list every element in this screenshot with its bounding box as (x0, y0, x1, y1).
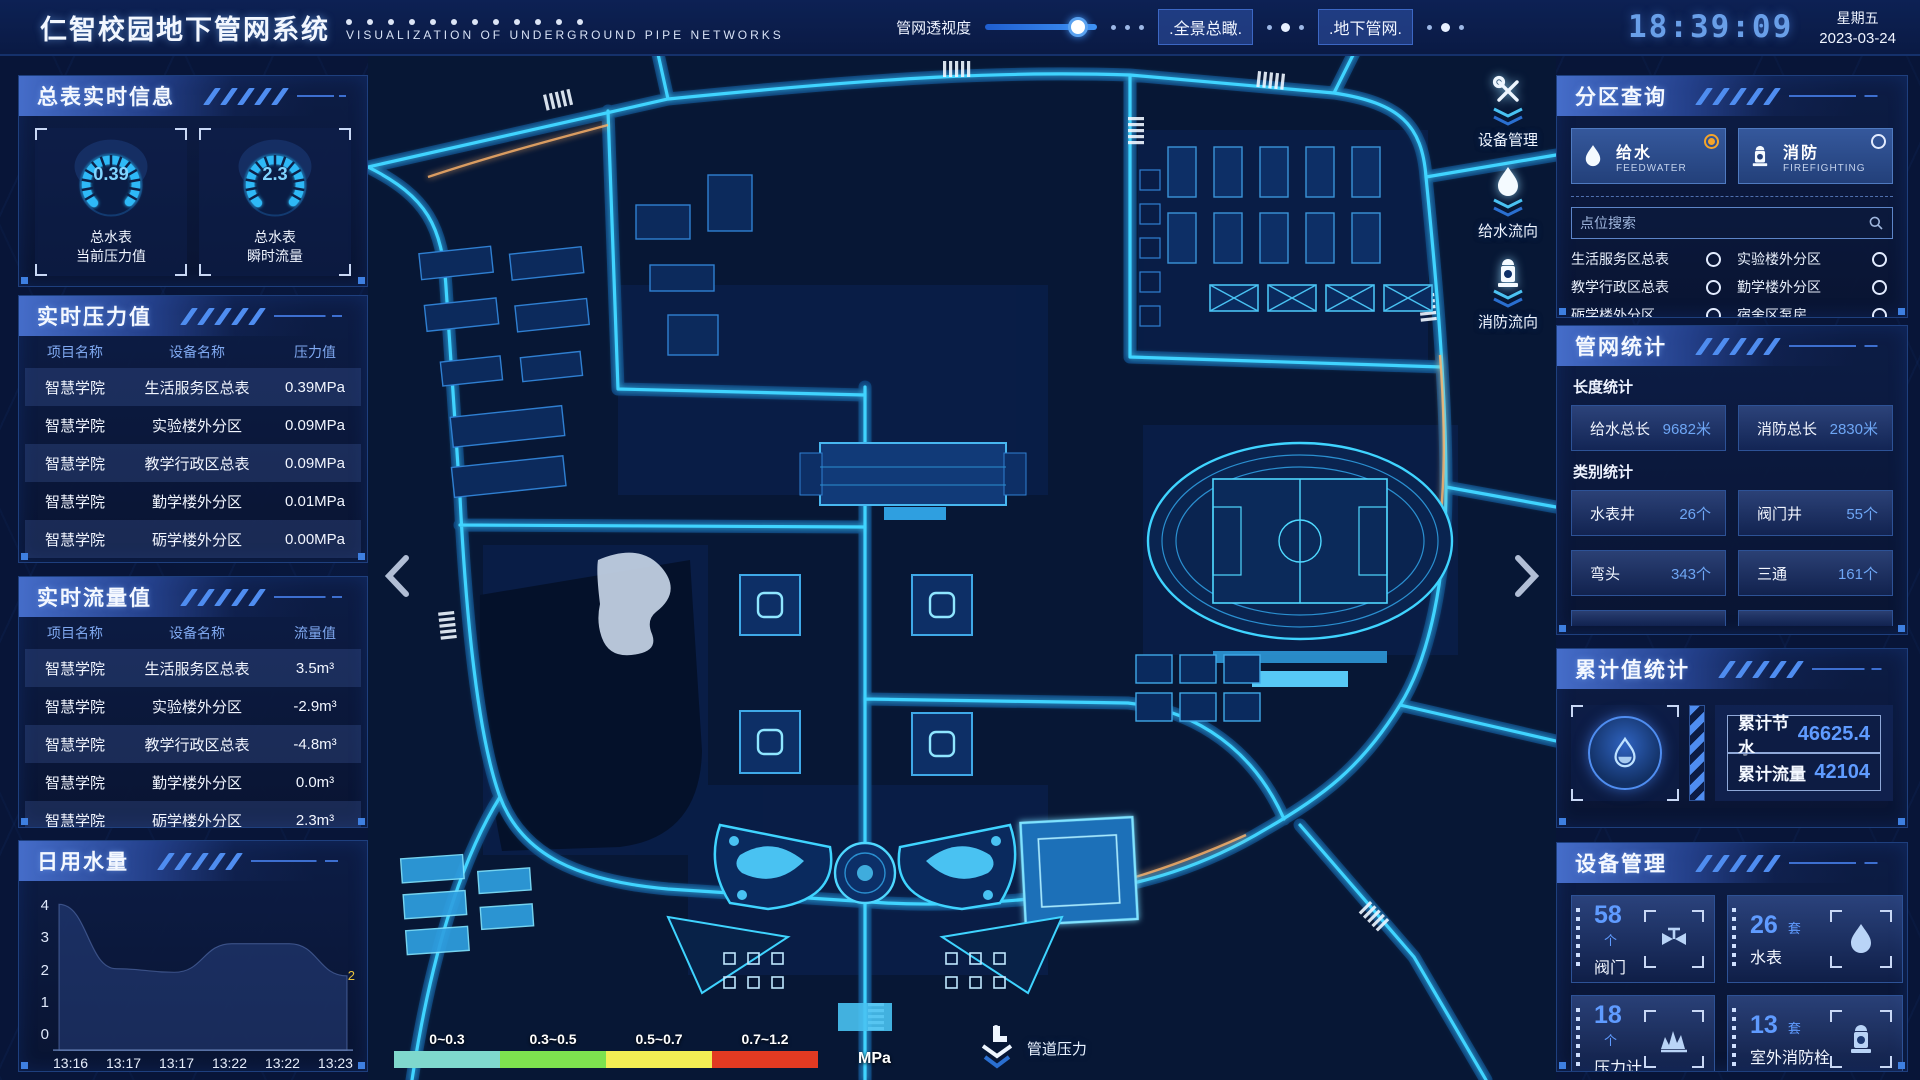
tool-device-management[interactable]: 设备管理 (1478, 73, 1538, 150)
section-master-info: 总表实时信息 0.39 (18, 75, 368, 287)
point-search[interactable] (1571, 207, 1893, 239)
dot-separator (1111, 25, 1144, 30)
map-tool-column: 设备管理 给水流向 (1478, 73, 1538, 332)
water-saving-emblem (1571, 705, 1679, 801)
list-item[interactable]: 生活服务区总表 (1571, 249, 1727, 269)
dot-separator (1267, 23, 1304, 32)
pipe-pressure-label: 管道压力 (1027, 1038, 1087, 1059)
tool-label: 设备管理 (1478, 129, 1538, 150)
table-row[interactable]: 智慧学院生活服务区总表0.39MPa (25, 368, 361, 406)
stat-water-meter-wells: 水表井26个 (1571, 490, 1726, 536)
tools-icon (1490, 73, 1526, 109)
section-zone-query: 分区查询 给水 FEEDWATER 消防 FIREFIGHTING (1556, 75, 1908, 318)
table-header: 项目名称设备名称压力值 (25, 336, 361, 368)
weekday: 星期五 (1837, 8, 1879, 28)
gauge-flow: 2.3 总水表 瞬时流量 (199, 128, 351, 276)
section-title: 实时压力值 (37, 301, 152, 331)
pressure-table: 项目名称设备名称压力值 智慧学院生活服务区总表0.39MPa 智慧学院实验楼外分… (19, 336, 367, 558)
flow-table: 项目名称设备名称流量值 智慧学院生活服务区总表3.5m³ 智慧学院实验楼外分区-… (19, 617, 367, 828)
list-item[interactable]: 教学行政区总表 (1571, 277, 1727, 297)
device-card-pressure-gauges[interactable]: 18个 压力计 (1571, 995, 1715, 1072)
chart-canvas (53, 897, 353, 1051)
search-input[interactable] (1580, 215, 1868, 231)
list-item[interactable]: 砺学楼外分区 (1571, 305, 1727, 318)
stripe-divider (1689, 705, 1705, 801)
category-stats-label: 类别统计 (1573, 461, 1891, 482)
device-card-water-meters[interactable]: 26套 水表 (1727, 895, 1903, 983)
legend-item: 0~0.3 (394, 1031, 500, 1068)
table-row[interactable]: 智慧学院砺学楼外分区0.00MPa (25, 520, 361, 558)
header-line (297, 95, 357, 97)
chart-y-axis: 43210 (27, 897, 53, 1057)
section-title: 日用水量 (37, 846, 129, 876)
gauge-label-line2: 瞬时流量 (247, 247, 303, 266)
chevron-stack-icon (1491, 107, 1525, 127)
table-row[interactable]: 智慧学院实验楼外分区0.09MPa (25, 406, 361, 444)
section-title: 累计值统计 (1575, 654, 1690, 684)
chart-end-value: 2 (348, 968, 355, 983)
usage-area-chart: 43210 2 13:1613:1713:1713:2213:2213:23 (19, 881, 367, 1057)
firefighting-label: 消防 (1783, 139, 1866, 163)
list-item[interactable]: 实验楼外分区 (1737, 249, 1893, 269)
stat-fire-length: 消防总长2830米 (1738, 405, 1893, 451)
title-decoration: VISUALIZATION OF UNDERGROUND PIPE NETWOR… (346, 13, 784, 42)
slider-thumb[interactable] (1068, 17, 1088, 37)
tool-label: 消防流向 (1478, 311, 1538, 332)
top-bar: 仁智校园地下管网系统 VISUALIZATION OF UNDERGROUND … (0, 0, 1920, 56)
gauge-value: 2.3 (262, 163, 287, 184)
valve-icon (1656, 921, 1692, 957)
gauge-label-line1: 总水表 (247, 228, 303, 247)
hydrant-icon (1747, 143, 1773, 169)
tool-fire-flow[interactable]: 消防流向 (1478, 255, 1538, 332)
stat-card-clipped (1738, 610, 1893, 626)
section-realtime-pressure: 实时压力值 项目名称设备名称压力值 智慧学院生活服务区总表0.39MPa 智慧学… (18, 295, 368, 563)
legend-item: 0.5~0.7 (606, 1031, 712, 1068)
title-dots (346, 19, 784, 25)
item-radio[interactable] (1706, 252, 1721, 267)
item-radio[interactable] (1706, 308, 1721, 319)
chevron-stack-icon (1491, 289, 1525, 309)
pipe-transparency-slider[interactable] (985, 24, 1097, 30)
table-header: 项目名称设备名称流量值 (25, 617, 361, 649)
stat-valve-wells: 阀门井55个 (1738, 490, 1893, 536)
campus-map[interactable]: 设备管理 给水流向 (368, 55, 1556, 1080)
feedwater-toggle[interactable]: 给水 FEEDWATER (1571, 128, 1726, 184)
chart-x-axis: 13:1613:1713:1713:2213:2213:23 (53, 1055, 353, 1071)
table-row[interactable]: 智慧学院生活服务区总表3.5m³ (25, 649, 361, 687)
legend-item: 0.7~1.2 (712, 1031, 818, 1068)
item-radio[interactable] (1872, 280, 1887, 295)
water-drop-icon (1490, 164, 1526, 200)
table-row[interactable]: 智慧学院实验楼外分区-2.9m³ (25, 687, 361, 725)
feedwater-en: FEEDWATER (1616, 163, 1687, 174)
hydrant-icon (1843, 1021, 1879, 1057)
water-drop-icon (1580, 143, 1606, 169)
legend-item: 0.3~0.5 (500, 1031, 606, 1068)
table-row[interactable]: 智慧学院教学行政区总表-4.8m³ (25, 725, 361, 763)
stat-tees: 三通161个 (1738, 550, 1893, 596)
app-title: 仁智校园地下管网系统 (40, 8, 330, 47)
section-title: 实时流量值 (37, 582, 152, 612)
section-pipe-stats: 管网统计 长度统计 给水总长9682米 消防总长2830米 类别统计 水表井26… (1556, 325, 1908, 635)
cumulative-flow: 累计流量42104 (1727, 753, 1881, 791)
zone-point-list: 生活服务区总表 实验楼外分区 教学行政区总表 勤学楼外分区 砺学楼外分区 宿舍区… (1571, 249, 1893, 318)
section-title: 总表实时信息 (37, 81, 175, 111)
section-title: 分区查询 (1575, 81, 1667, 111)
clock: 18:39:09 (1628, 9, 1793, 45)
water-meter-icon (1843, 921, 1879, 957)
tool-label: 给水流向 (1478, 220, 1538, 241)
table-row[interactable]: 智慧学院砺学楼外分区2.3m³ (25, 801, 361, 828)
water-drop-icon (1608, 736, 1642, 770)
underground-pipes-button[interactable]: .地下管网. (1318, 9, 1413, 45)
gauge-dial: 2.3 (221, 132, 329, 228)
legend-unit: MPa (858, 1050, 891, 1068)
section-header: 总表实时信息 (19, 76, 367, 116)
table-row[interactable]: 智慧学院教学行政区总表0.09MPa (25, 444, 361, 482)
firefighting-toggle[interactable]: 消防 FIREFIGHTING (1738, 128, 1893, 184)
section-daily-usage: 日用水量 43210 2 13:1613:1713:1713:2213:2213… (18, 840, 368, 1072)
app-subtitle: VISUALIZATION OF UNDERGROUND PIPE NETWOR… (346, 28, 784, 42)
pressure-gauge-icon (1656, 1021, 1692, 1057)
datetime-block: 18:39:09 星期五 2023-03-24 (1628, 8, 1896, 47)
feedwater-radio[interactable] (1704, 134, 1719, 149)
gauge-label-line2: 当前压力值 (76, 247, 146, 266)
section-title: 设备管理 (1575, 848, 1667, 878)
item-radio[interactable] (1872, 308, 1887, 319)
section-realtime-flow: 实时流量值 项目名称设备名称流量值 智慧学院生活服务区总表3.5m³ 智慧学院实… (18, 576, 368, 828)
stat-elbows: 弯头343个 (1571, 550, 1726, 596)
length-stats-label: 长度统计 (1573, 376, 1891, 397)
overview-button[interactable]: .全景总瞰. (1158, 9, 1253, 45)
pipe-pressure-toggle[interactable]: 管道压力 (977, 1024, 1087, 1072)
stat-card-clipped (1571, 610, 1726, 626)
section-title: 管网统计 (1575, 331, 1667, 361)
slash-decoration (209, 88, 283, 105)
pipe-transparency-label: 管网透视度 (896, 17, 971, 38)
table-row[interactable]: 智慧学院勤学楼外分区0.01MPa (25, 482, 361, 520)
stat-feedwater-length: 给水总长9682米 (1571, 405, 1726, 451)
chevron-stack-icon (1491, 198, 1525, 218)
gauge-dial: 0.39 (57, 132, 165, 228)
list-item[interactable]: 宿舍区泵房 (1737, 305, 1893, 318)
list-item[interactable]: 勤学楼外分区 (1737, 277, 1893, 297)
gauge-label-line1: 总水表 (76, 228, 146, 247)
legend-scale: 0~0.30.3~0.50.5~0.70.7~1.2 (394, 1031, 818, 1068)
item-radio[interactable] (1872, 252, 1887, 267)
device-card-valves[interactable]: 58个 阀门 (1571, 895, 1715, 983)
pipe-pressure-icon (977, 1024, 1017, 1072)
firefighting-en: FIREFIGHTING (1783, 163, 1866, 174)
item-radio[interactable] (1706, 280, 1721, 295)
date: 2023-03-24 (1819, 30, 1896, 47)
device-card-hydrants[interactable]: 13套 室外消防栓 (1727, 995, 1903, 1072)
table-row[interactable]: 智慧学院勤学楼外分区0.0m³ (25, 763, 361, 801)
hydrant-icon (1490, 255, 1526, 291)
cumulative-water-saved: 累计节水46625.4 (1727, 715, 1881, 753)
section-cumulative: 累计值统计 累计节水46625.4 累计流量42104 (1556, 648, 1908, 828)
gauge-pressure: 0.39 总水表 当前压力值 (35, 128, 187, 276)
section-devices: 设备管理 58个 阀门 26套 水表 (1556, 842, 1908, 1072)
tool-feedwater-flow[interactable]: 给水流向 (1478, 164, 1538, 241)
map-next-arrow[interactable] (1510, 553, 1544, 599)
search-icon[interactable] (1868, 215, 1884, 231)
dot-separator (1427, 23, 1464, 32)
campus-map-canvas (368, 55, 1556, 1080)
firefighting-radio[interactable] (1871, 134, 1886, 149)
map-prev-arrow[interactable] (380, 553, 414, 599)
feedwater-label: 给水 (1616, 139, 1687, 163)
pressure-legend: 0~0.30.3~0.50.5~0.70.7~1.2 MPa 管道压力 (394, 1024, 1087, 1068)
gauge-value: 0.39 (93, 163, 129, 184)
dashed-divider (1571, 196, 1893, 197)
